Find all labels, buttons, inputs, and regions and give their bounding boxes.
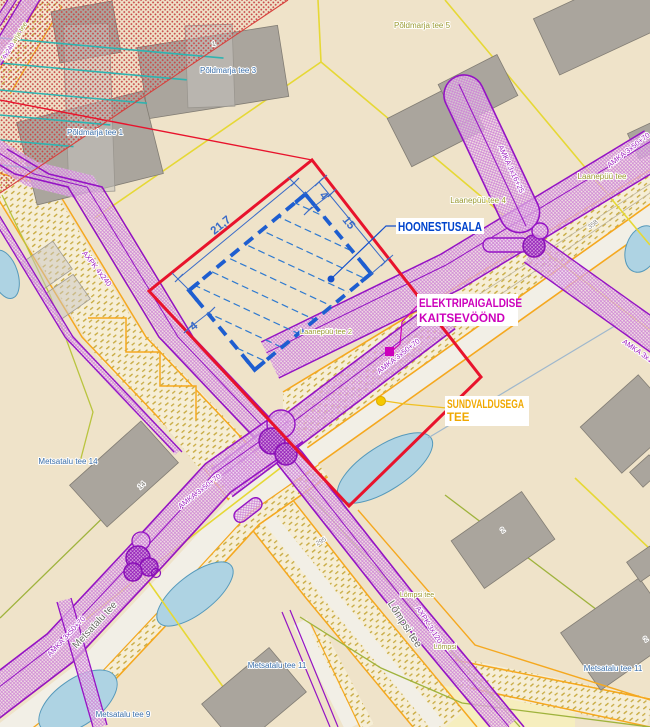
svg-text:HOONESTUSALA: HOONESTUSALA <box>398 219 482 234</box>
svg-text:Põldmarja tee 3: Põldmarja tee 3 <box>200 66 257 75</box>
svg-text:Lõmpsi tee: Lõmpsi tee <box>400 592 434 599</box>
svg-text:Laanepüü tee 2: Laanepüü tee 2 <box>300 327 352 336</box>
svg-text:Põldmarja tee 5: Põldmarja tee 5 <box>394 21 451 30</box>
svg-text:Lõmpsi: Lõmpsi <box>434 644 457 651</box>
svg-text:Metsatalu tee 11: Metsatalu tee 11 <box>584 664 643 673</box>
svg-text:KAITSEVÖÖND: KAITSEVÖÖND <box>419 310 505 325</box>
svg-text:Laanepüü tee: Laanepüü tee <box>578 172 627 181</box>
svg-text:Metsatalu tee 11: Metsatalu tee 11 <box>248 661 307 670</box>
svg-text:SUNDVALDUSEGA: SUNDVALDUSEGA <box>447 399 524 411</box>
svg-text:TEE: TEE <box>447 412 470 424</box>
svg-text:ELEKTRIPAIGALDISE: ELEKTRIPAIGALDISE <box>419 296 522 310</box>
svg-text:Laanepüü tee 4: Laanepüü tee 4 <box>450 196 506 205</box>
svg-text:Põldmarja tee 1: Põldmarja tee 1 <box>67 128 124 137</box>
svg-text:Metsatalu tee 14: Metsatalu tee 14 <box>38 457 98 466</box>
svg-text:Metsatalu tee 9: Metsatalu tee 9 <box>96 710 151 719</box>
